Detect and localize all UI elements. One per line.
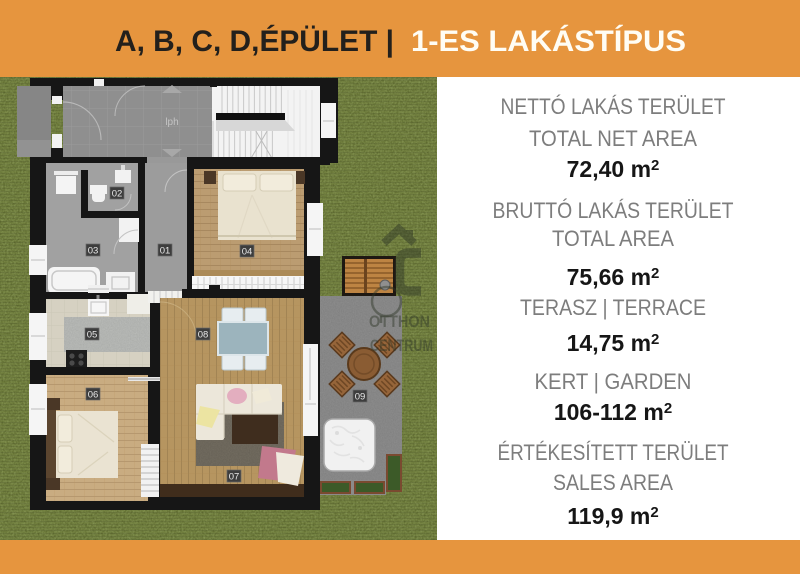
- svg-text:KERT | GARDEN: KERT | GARDEN: [535, 369, 692, 394]
- svg-text:106-112 m2: 106-112 m2: [554, 399, 672, 425]
- svg-text:CENTRUM: CENTRUM: [370, 336, 433, 355]
- svg-text:TOTAL NET AREA: TOTAL NET AREA: [529, 126, 697, 151]
- svg-text:A, B, C, D,ÉPÜLET |: A, B, C, D,ÉPÜLET |: [115, 24, 394, 58]
- svg-text:02: 02: [112, 189, 123, 200]
- svg-text:03: 03: [88, 246, 99, 257]
- svg-text:119,9 m2: 119,9 m2: [567, 503, 658, 529]
- svg-text:09: 09: [355, 392, 366, 403]
- svg-text:OTTHON: OTTHON: [369, 312, 430, 331]
- svg-text:TOTAL AREA: TOTAL AREA: [552, 226, 674, 251]
- svg-text:01: 01: [160, 246, 171, 257]
- svg-text:NETTÓ LAKÁS TERÜLET: NETTÓ LAKÁS TERÜLET: [501, 94, 726, 119]
- svg-text:BRUTTÓ LAKÁS TERÜLET: BRUTTÓ LAKÁS TERÜLET: [493, 198, 734, 223]
- svg-text:ÉRTÉKESÍTETT TERÜLET: ÉRTÉKESÍTETT TERÜLET: [498, 440, 729, 465]
- svg-text:72,40 m2: 72,40 m2: [567, 156, 660, 182]
- svg-text:06: 06: [88, 390, 99, 401]
- svg-text:05: 05: [87, 330, 98, 341]
- svg-text:07: 07: [229, 472, 240, 483]
- svg-text:75,66 m2: 75,66 m2: [567, 264, 660, 290]
- svg-text:14,75 m2: 14,75 m2: [567, 330, 660, 356]
- svg-text:TERASZ | TERRACE: TERASZ | TERRACE: [520, 295, 706, 320]
- svg-text:1-ES LAKÁSTÍPUS: 1-ES LAKÁSTÍPUS: [411, 24, 686, 58]
- svg-text:lph: lph: [165, 117, 178, 128]
- svg-text:08: 08: [198, 330, 209, 341]
- svg-text:SALES AREA: SALES AREA: [553, 470, 673, 495]
- svg-text:04: 04: [242, 247, 253, 258]
